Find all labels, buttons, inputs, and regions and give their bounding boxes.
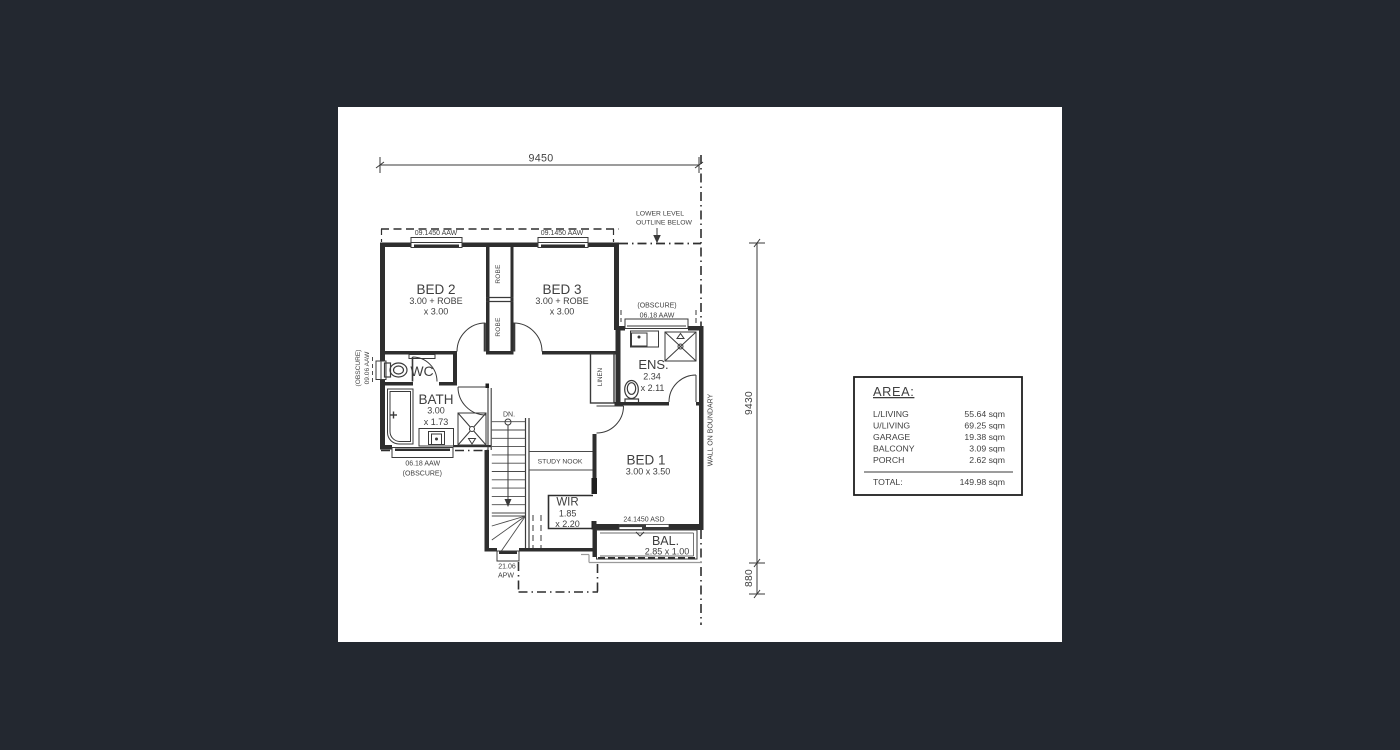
svg-text:(OBSCURE): (OBSCURE) [403,471,442,478]
svg-text:BALCONY: BALCONY [873,444,915,454]
svg-text:06.18 AAW: 06.18 AAW [640,313,675,320]
svg-text:L/LIVING: L/LIVING [873,409,909,419]
svg-text:(OBSCURE): (OBSCURE) [355,350,362,387]
svg-text:2.34: 2.34 [643,372,661,382]
svg-text:GARAGE: GARAGE [873,432,910,442]
svg-text:ROBE: ROBE [495,264,502,283]
svg-text:(OBSCURE): (OBSCURE) [637,303,676,310]
svg-text:9430: 9430 [744,391,755,415]
svg-text:3.00: 3.00 [427,406,445,416]
svg-text:55.64 sqm: 55.64 sqm [964,409,1005,419]
svg-text:21.06: 21.06 [498,564,516,571]
svg-text:06.18 AAW: 06.18 AAW [405,461,440,468]
svg-text:LINEN: LINEN [597,368,604,386]
svg-text:9450: 9450 [529,153,554,165]
svg-text:69.25 sqm: 69.25 sqm [964,421,1005,431]
svg-text:WALL ON BOUNDARY: WALL ON BOUNDARY [708,393,715,466]
svg-text:x 3.00: x 3.00 [424,307,449,317]
svg-text:3.00 x 3.50: 3.00 x 3.50 [626,467,671,477]
svg-text:3.00 + ROBE: 3.00 + ROBE [535,296,588,306]
svg-text:09.1450 AAW: 09.1450 AAW [415,230,458,237]
svg-text:OUTLINE BELOW: OUTLINE BELOW [636,220,692,227]
svg-text:LOWER LEVEL: LOWER LEVEL [636,211,684,218]
svg-text:U/LIVING: U/LIVING [873,421,910,431]
svg-text:x 2.20: x 2.20 [555,519,580,529]
svg-text:19.38 sqm: 19.38 sqm [964,432,1005,442]
svg-text:WC: WC [410,363,433,379]
svg-text:BED 3: BED 3 [542,282,581,297]
svg-text:2.85 x 1.00: 2.85 x 1.00 [645,547,690,557]
svg-text:1.85: 1.85 [559,508,577,518]
svg-text:3.09 sqm: 3.09 sqm [969,444,1005,454]
svg-text:ROBE: ROBE [495,317,502,336]
svg-text:PORCH: PORCH [873,455,904,465]
svg-text:09.06 AAW: 09.06 AAW [364,351,371,385]
svg-text:149.98 sqm: 149.98 sqm [960,477,1005,487]
svg-text:ENS.: ENS. [638,357,668,372]
svg-text:BED 2: BED 2 [416,282,455,297]
svg-text:STUDY NOOK: STUDY NOOK [538,459,583,466]
svg-text:880: 880 [744,569,755,587]
svg-text:24.1450 ASD: 24.1450 ASD [623,517,664,524]
svg-text:3.00 + ROBE: 3.00 + ROBE [409,296,462,306]
svg-text:WIR: WIR [556,497,578,509]
svg-text:x 2.11: x 2.11 [641,383,665,393]
svg-text:x 3.00: x 3.00 [550,307,575,317]
svg-text:DN.: DN. [503,412,515,419]
svg-text:APW: APW [498,573,514,580]
svg-text:TOTAL:: TOTAL: [873,477,903,487]
svg-text:x 1.73: x 1.73 [424,417,449,427]
svg-text:AREA:: AREA: [873,384,914,399]
svg-text:BED 1: BED 1 [626,453,665,468]
svg-text:09.1450 AAW: 09.1450 AAW [541,230,584,237]
svg-text:2.62 sqm: 2.62 sqm [969,455,1005,465]
